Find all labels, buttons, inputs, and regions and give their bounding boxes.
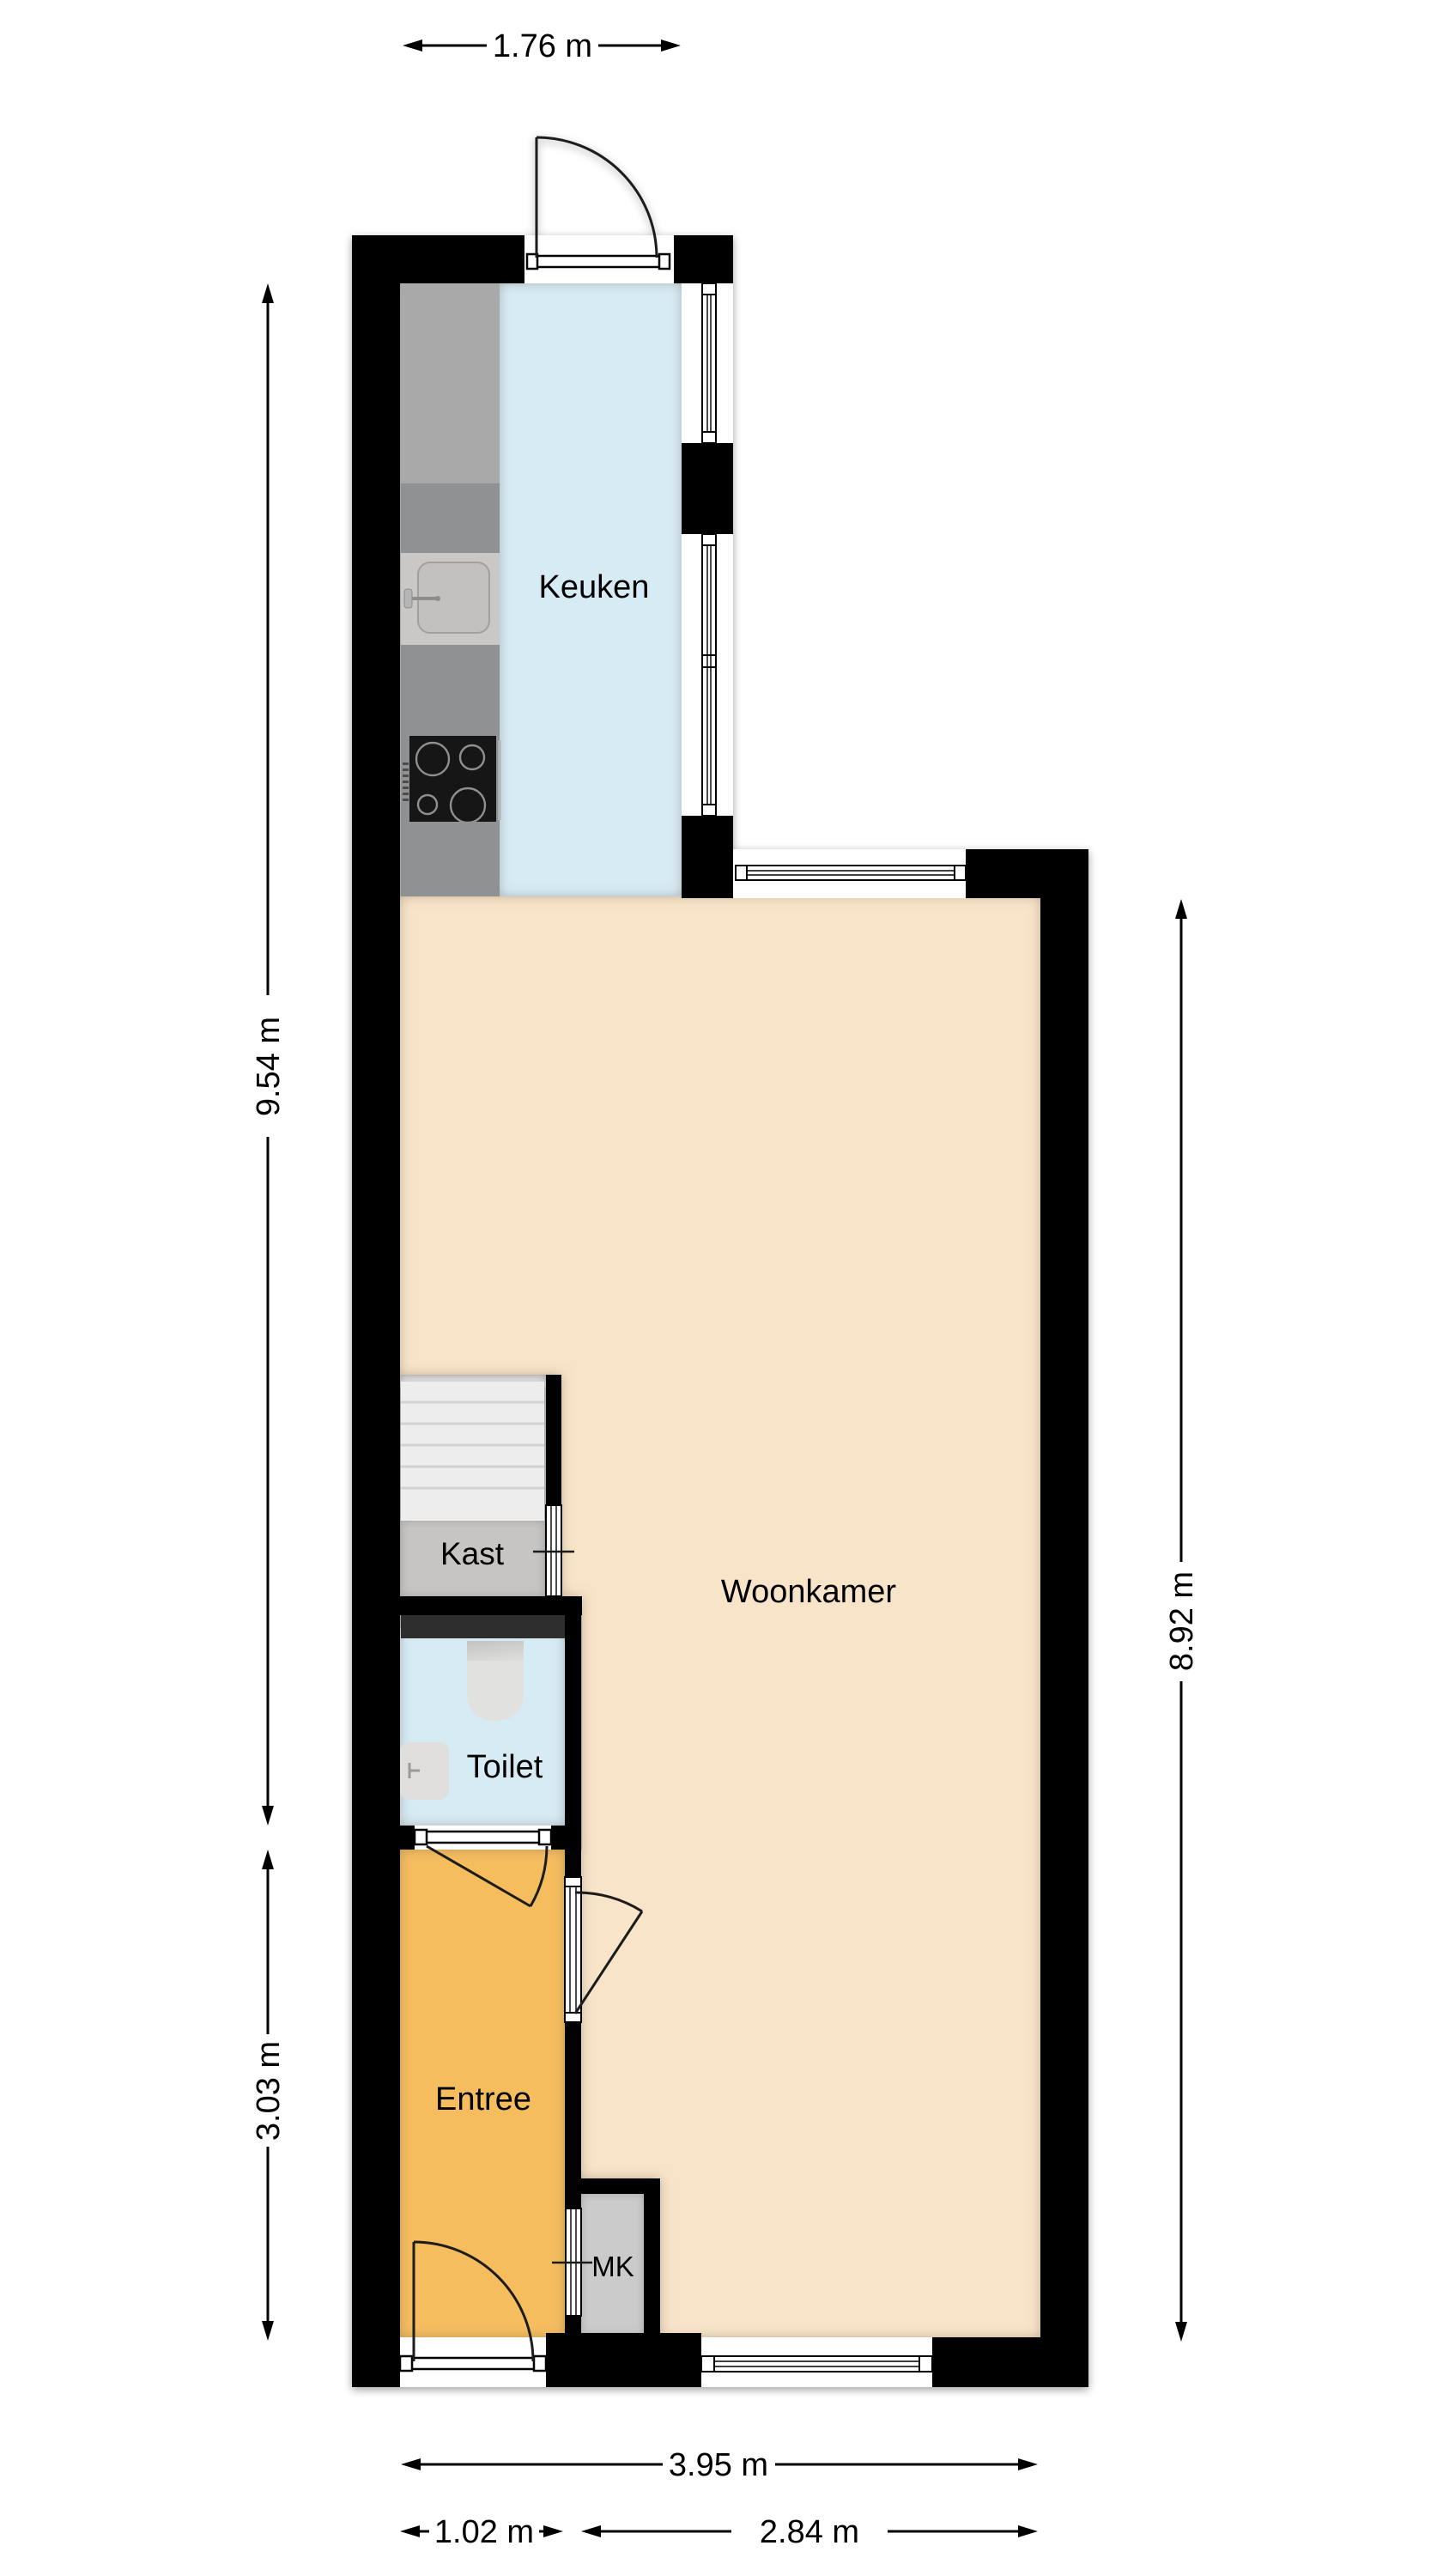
svg-text:3.95 m: 3.95 m [669,2447,768,2483]
svg-text:MK: MK [591,2251,634,2282]
svg-text:2.84 m: 2.84 m [760,2514,859,2550]
svg-text:3.03 m: 3.03 m [251,2041,287,2141]
svg-text:1.76 m: 1.76 m [493,28,592,64]
svg-text:9.54 m: 9.54 m [251,1017,287,1116]
svg-text:Woonkamer: Woonkamer [721,1574,897,1610]
svg-text:Toilet: Toilet [467,1749,543,1785]
svg-text:Keuken: Keuken [539,569,650,605]
svg-text:Entree: Entree [435,2081,531,2117]
svg-text:8.92 m: 8.92 m [1164,1571,1200,1671]
svg-text:Kast: Kast [440,1536,505,1571]
svg-text:1.02 m: 1.02 m [434,2514,534,2550]
